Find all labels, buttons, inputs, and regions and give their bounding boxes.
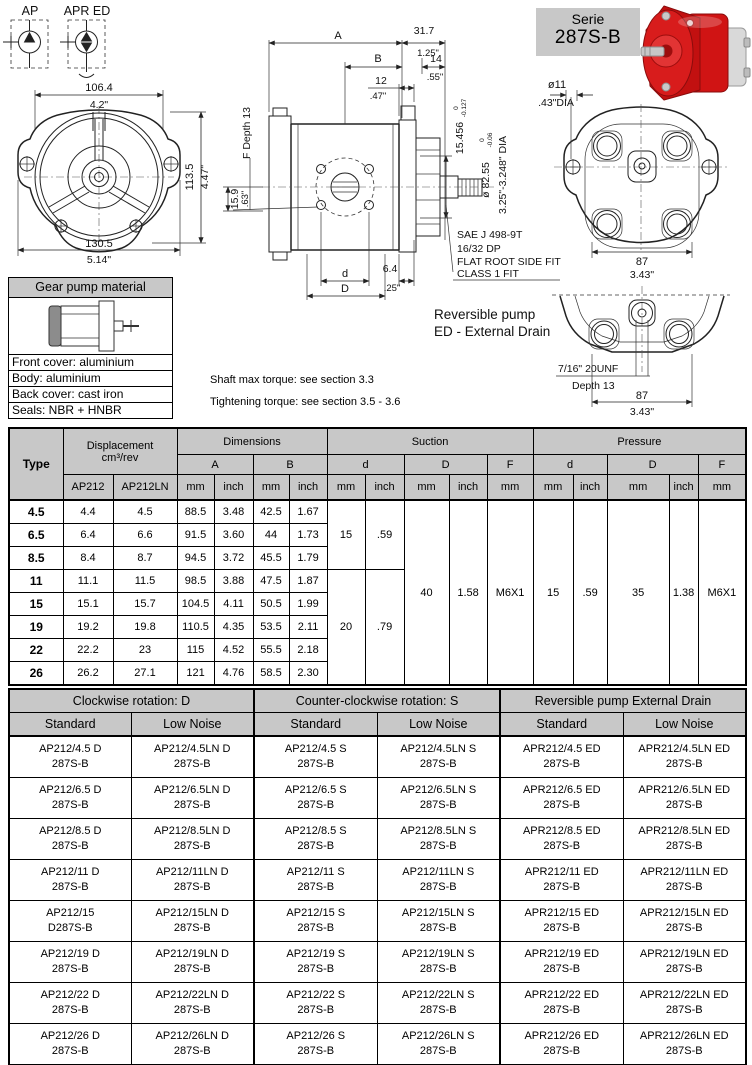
dim-dd-label: D (341, 283, 349, 295)
model-cell-line: AP212/11LN S (378, 865, 500, 880)
model-cell: APR212/26 ED287S-B (500, 1024, 623, 1065)
model-cell: AP212/6.5 D287S-B (9, 778, 131, 819)
model-cell-line: APR212/6.5 ED (501, 783, 623, 798)
front-span-mm: 130.5 (85, 238, 113, 250)
model-cell-line: APR212/19 ED (501, 947, 623, 962)
reversible-note-line2: ED - External Drain (434, 324, 550, 339)
value-cell: 91.5 (177, 524, 214, 547)
model-cell: AP212/22LN S287S-B (377, 983, 500, 1024)
model-cell-line: D287S-B (10, 921, 131, 936)
col-header-suction-dd: D (404, 455, 487, 475)
ap-symbol-label: AP (22, 4, 39, 18)
model-cell: APR212/19LN ED287S-B (623, 942, 746, 983)
model-cell-line: AP212/6.5LN S (378, 783, 500, 798)
model-cell-line: APR212/4.5 ED (501, 742, 623, 757)
thread-label: 7/16" 20UNF (558, 363, 618, 375)
front-width-in: 4.2" (90, 99, 109, 111)
value-cell: 55.5 (253, 639, 289, 662)
unit-header: mm (404, 475, 449, 501)
unit-header: mm (533, 475, 573, 501)
value-cell: 1.87 (289, 570, 327, 593)
model-cell-line: AP212/15LN S (378, 906, 500, 921)
value-cell: 4.5 (113, 500, 177, 524)
value-cell: 6.4 (63, 524, 113, 547)
value-cell: 3.88 (214, 570, 253, 593)
model-cell-line: 287S-B (255, 839, 377, 854)
material-row-seals: Seals: NBR + HNBR (9, 402, 172, 418)
unit-header: inch (214, 475, 253, 501)
model-cell-line: AP212/19 S (255, 947, 377, 962)
model-row: AP212/6.5 D287S-BAP212/6.5LN D287S-BAP21… (9, 778, 746, 819)
value-cell: .59 (365, 500, 404, 570)
unit-header: mm (327, 475, 365, 501)
group-header-reversible: Reversible pump External Drain (500, 689, 746, 713)
model-cell-line: AP212/26LN D (132, 1029, 254, 1044)
ap-symbol: AP (3, 4, 48, 68)
model-cell: AP212/11 D287S-B (9, 860, 131, 901)
material-box-title: Gear pump material (9, 278, 172, 298)
model-cell-line: 287S-B (378, 798, 500, 813)
model-cell-line: APR212/6.5LN ED (624, 783, 746, 798)
value-cell: 15 (533, 500, 573, 685)
dim-12-in: .47" (370, 91, 387, 102)
apr-ed-symbol: APR ED (60, 4, 110, 78)
value-cell: 1.67 (289, 500, 327, 524)
value-cell: 88.5 (177, 500, 214, 524)
front-width-mm: 106.4 (85, 82, 113, 94)
group-header-counter-clockwise: Counter-clockwise rotation: S (254, 689, 500, 713)
dim-a-label: A (334, 30, 342, 42)
model-cell: AP212/22LN D287S-B (131, 983, 254, 1024)
model-row: AP212/22 D287S-BAP212/22LN D287S-BAP212/… (9, 983, 746, 1024)
unit-header: mm (698, 475, 746, 501)
value-cell: 53.5 (253, 616, 289, 639)
model-cell: AP212/19 S287S-B (254, 942, 377, 983)
model-cell: APR212/22LN ED287S-B (623, 983, 746, 1024)
material-row-front-cover: Front cover: aluminium (9, 354, 172, 370)
model-cell-line: 287S-B (132, 1003, 254, 1018)
displacement-label: Displacement (87, 440, 154, 452)
dim-64-in: .25" (384, 283, 401, 294)
model-cell-line: AP212/26 D (10, 1029, 131, 1044)
model-cell-line: APR212/15LN ED (624, 906, 746, 921)
model-cell-line: 287S-B (132, 880, 254, 895)
model-cell-line: 287S-B (255, 962, 377, 977)
model-cell-line: 287S-B (624, 921, 746, 936)
value-cell: 1.38 (669, 500, 698, 685)
model-cell: APR212/6.5LN ED287S-B (623, 778, 746, 819)
shaft-len-dim: 15.456 (454, 122, 466, 154)
model-cell: APR212/15 ED287S-B (500, 901, 623, 942)
model-cell-line: AP212/6.5 S (255, 783, 377, 798)
value-cell: M6X1 (487, 500, 533, 685)
model-cell: AP212/4.5LN D287S-B (131, 736, 254, 778)
value-cell: 11.5 (113, 570, 177, 593)
value-cell: 3.60 (214, 524, 253, 547)
model-cell: AP212/8.5 S287S-B (254, 819, 377, 860)
apr-ed-symbol-label: APR ED (64, 4, 111, 18)
side-view-drawing: A 31.7 1.25" B 14 .55" 12 .47" F Depth 1… (223, 25, 561, 300)
dim-b-label: B (374, 53, 381, 65)
model-cell-line: 287S-B (624, 757, 746, 772)
model-cell-line: 287S-B (10, 839, 131, 854)
value-cell: 8.7 (113, 547, 177, 570)
model-cell-line: 287S-B (10, 962, 131, 977)
model-cell: AP212/22 D287S-B (9, 983, 131, 1024)
model-cell-line: 287S-B (378, 880, 500, 895)
value-cell: 15.7 (113, 593, 177, 616)
model-cell-line: AP212/6.5 D (10, 783, 131, 798)
subheader-standard: Standard (500, 713, 623, 737)
model-cell: APR212/15LN ED287S-B (623, 901, 746, 942)
unit-header: mm (253, 475, 289, 501)
value-cell: 26.2 (63, 662, 113, 686)
model-cell: AP212/15 S287S-B (254, 901, 377, 942)
model-cell-line: 287S-B (255, 757, 377, 772)
model-cell-line: AP212/22LN D (132, 988, 254, 1003)
value-cell: M6X1 (698, 500, 746, 685)
model-cell-line: 287S-B (255, 798, 377, 813)
model-cell-line: 287S-B (624, 839, 746, 854)
thread-depth-label: Depth 13 (572, 380, 615, 392)
model-cell-line: AP212/15LN D (132, 906, 254, 921)
model-cell: AP212/4.5LN S287S-B (377, 736, 500, 778)
shaft-torque-note: Shaft max torque: see section 3.3 (210, 369, 400, 391)
model-cell-line: APR212/4.5LN ED (624, 742, 746, 757)
model-cell-line: APR212/8.5 ED (501, 824, 623, 839)
model-cell-line: 287S-B (501, 839, 623, 854)
rear-width-mm: 87 (636, 256, 648, 268)
model-cell-line: 287S-B (132, 921, 254, 936)
model-cell-line: AP212/22 D (10, 988, 131, 1003)
model-cell-line: AP212/11LN D (132, 865, 254, 880)
model-cell-line: AP212/8.5LN D (132, 824, 254, 839)
model-cell-line: 287S-B (378, 921, 500, 936)
model-cell-line: 287S-B (132, 1044, 254, 1059)
dim-12-mm: 12 (375, 75, 387, 87)
dim-d-label: d (342, 268, 348, 280)
model-cell-line: 287S-B (501, 1003, 623, 1018)
model-cell: AP212/6.5 S287S-B (254, 778, 377, 819)
model-cell: AP212/6.5LN D287S-B (131, 778, 254, 819)
model-cell: AP212/22 S287S-B (254, 983, 377, 1024)
pump-spec-table: Type Displacement cm³/rev Dimensions Suc… (8, 427, 747, 686)
col-header-suction-d: d (327, 455, 404, 475)
col-header-ap212ln: AP212LN (113, 475, 177, 501)
model-cell: AP212/26 S287S-B (254, 1024, 377, 1065)
sae-note-line2: 16/32 DP (457, 243, 501, 255)
model-cell-line: AP212/8.5LN S (378, 824, 500, 839)
model-cell: AP212/11LN D287S-B (131, 860, 254, 901)
front-height-in: 4.47" (199, 165, 211, 189)
model-cell-line: 287S-B (624, 1003, 746, 1018)
type-cell: 15 (9, 593, 63, 616)
front-span-in: 5.14" (87, 254, 111, 266)
col-header-a: A (177, 455, 253, 475)
model-cell-line: APR212/26LN ED (624, 1029, 746, 1044)
model-cell-line: 287S-B (378, 839, 500, 854)
model-cell-line: 287S-B (378, 757, 500, 772)
model-cell-line: 287S-B (501, 1044, 623, 1059)
drain-mark (79, 74, 94, 78)
model-row: AP212/26 D287S-BAP212/26LN D287S-BAP212/… (9, 1024, 746, 1065)
model-cell-line: 287S-B (132, 962, 254, 977)
model-cell: AP212/19LN S287S-B (377, 942, 500, 983)
value-cell: 40 (404, 500, 449, 685)
unit-header: mm (177, 475, 214, 501)
model-cell-line: 287S-B (501, 921, 623, 936)
value-cell: 4.11 (214, 593, 253, 616)
torque-notes: Shaft max torque: see section 3.3 Tighte… (210, 369, 400, 413)
dim-159-in: .63" (240, 191, 251, 208)
model-cell: APR212/6.5 ED287S-B (500, 778, 623, 819)
value-cell: 35 (607, 500, 669, 685)
model-cell-line: AP212/4.5LN D (132, 742, 254, 757)
value-cell: 1.79 (289, 547, 327, 570)
model-cell: APR212/11LN ED287S-B (623, 860, 746, 901)
value-cell: 19.2 (63, 616, 113, 639)
model-cell: AP212/4.5 D287S-B (9, 736, 131, 778)
model-cell: AP212/19LN D287S-B (131, 942, 254, 983)
model-cell-line: 287S-B (624, 1044, 746, 1059)
model-cell-line: AP212/19LN D (132, 947, 254, 962)
value-cell: 8.4 (63, 547, 113, 570)
value-cell: 4.35 (214, 616, 253, 639)
serie-badge-line1: Serie (536, 8, 640, 27)
value-cell: 2.11 (289, 616, 327, 639)
model-cell: APR212/22 ED287S-B (500, 983, 623, 1024)
model-cell-line: 287S-B (624, 880, 746, 895)
type-cell: 6.5 (9, 524, 63, 547)
model-cell-line: 287S-B (10, 798, 131, 813)
value-cell: 45.5 (253, 547, 289, 570)
type-cell: 19 (9, 616, 63, 639)
model-cell-line: 287S-B (624, 962, 746, 977)
model-cell-line: AP212/4.5 S (255, 742, 377, 757)
rear-width-in: 3.43" (630, 269, 654, 281)
pump-side-icon (9, 298, 169, 354)
material-box-drawing (9, 298, 172, 354)
model-row: AP212/19 D287S-BAP212/19LN D287S-BAP212/… (9, 942, 746, 983)
model-cell-line: AP212/22LN S (378, 988, 500, 1003)
value-cell: 98.5 (177, 570, 214, 593)
model-cell-line: AP212/26LN S (378, 1029, 500, 1044)
displacement-unit: cm³/rev (102, 452, 139, 464)
tightening-torque-note: Tightening torque: see section 3.5 - 3.6 (210, 391, 400, 413)
model-table-body: AP212/4.5 D287S-BAP212/4.5LN D287S-BAP21… (9, 736, 746, 1065)
model-cell-line: APR212/19LN ED (624, 947, 746, 962)
value-cell: 6.6 (113, 524, 177, 547)
model-cell-line: AP212/22 S (255, 988, 377, 1003)
model-cell-line: 287S-B (624, 798, 746, 813)
value-cell: 27.1 (113, 662, 177, 686)
dia11-in: .43"DIA (538, 97, 574, 109)
model-cell-line: APR212/22 ED (501, 988, 623, 1003)
value-cell: 4.4 (63, 500, 113, 524)
model-cell-line: AP212/11 D (10, 865, 131, 880)
model-cell: AP212/8.5LN D287S-B (131, 819, 254, 860)
serie-badge: Serie 287S-B (536, 8, 640, 56)
model-cell-line: AP212/8.5 S (255, 824, 377, 839)
model-cell: AP212/26LN S287S-B (377, 1024, 500, 1065)
col-header-suction-f: F (487, 455, 533, 475)
model-cell-line: 287S-B (255, 1044, 377, 1059)
spec-row: 4.54.44.588.53.4842.51.6715.59401.58M6X1… (9, 500, 746, 524)
type-cell: 26 (9, 662, 63, 686)
model-cell-line: 287S-B (10, 1044, 131, 1059)
value-cell: 104.5 (177, 593, 214, 616)
value-cell: 11.1 (63, 570, 113, 593)
model-cell-line: 287S-B (378, 1003, 500, 1018)
shaft-dia-tol-hi: 0 (479, 138, 486, 142)
model-cell-line: APR212/15 ED (501, 906, 623, 921)
datasheet-page: AP APR ED (0, 0, 752, 1065)
model-cell-line: 287S-B (255, 921, 377, 936)
value-cell: 1.73 (289, 524, 327, 547)
model-row: AP212/15D287S-BAP212/15LN D287S-BAP212/1… (9, 901, 746, 942)
col-header-pressure: Pressure (533, 428, 746, 455)
shaft-len-tol-hi: 0 (453, 106, 460, 110)
material-row-body: Body: aluminium (9, 370, 172, 386)
model-cell-line: AP212/4.5LN S (378, 742, 500, 757)
model-cell-line: AP212/6.5LN D (132, 783, 254, 798)
model-cell: AP212/19 D287S-B (9, 942, 131, 983)
model-row: AP212/11 D287S-BAP212/11LN D287S-BAP212/… (9, 860, 746, 901)
value-cell: .79 (365, 570, 404, 686)
reversible-note-line1: Reversible pump (434, 307, 535, 322)
reversible-rear-view-drawing: 7/16" 20UNF Depth 13 87 3.43" (552, 286, 730, 418)
value-cell: 3.72 (214, 547, 253, 570)
value-cell: 20 (327, 570, 365, 686)
value-cell: 23 (113, 639, 177, 662)
value-cell: 15 (327, 500, 365, 570)
model-cell: APR212/19 ED287S-B (500, 942, 623, 983)
model-cell-line: 287S-B (10, 1003, 131, 1018)
col-header-dimensions: Dimensions (177, 428, 327, 455)
value-cell: 3.48 (214, 500, 253, 524)
value-cell: 4.76 (214, 662, 253, 686)
value-cell: 58.5 (253, 662, 289, 686)
dim-14-mm: 14 (430, 53, 442, 65)
dim-14-in: .55" (427, 72, 444, 83)
unit-header: inch (289, 475, 327, 501)
value-cell: 1.99 (289, 593, 327, 616)
dim-317-mm: 31.7 (414, 25, 435, 37)
sae-note-line3: FLAT ROOT SIDE FIT (457, 256, 561, 268)
model-code-table: Clockwise rotation: D Counter-clockwise … (8, 688, 747, 1065)
model-cell-line: 287S-B (378, 1044, 500, 1059)
type-cell: 8.5 (9, 547, 63, 570)
model-cell: AP212/6.5LN S287S-B (377, 778, 500, 819)
model-cell-line: AP212/4.5 D (10, 742, 131, 757)
shaft-dia-dim: ø 82.55 (480, 162, 492, 198)
subheader-low-noise: Low Noise (377, 713, 500, 737)
model-cell: AP212/26LN D287S-B (131, 1024, 254, 1065)
model-cell: APR212/4.5LN ED287S-B (623, 736, 746, 778)
value-cell: 2.30 (289, 662, 327, 686)
col-header-ap212: AP212 (63, 475, 113, 501)
model-cell-line: APR212/11 ED (501, 865, 623, 880)
shaft-dia-tol-lo: -0.06 (487, 132, 494, 147)
shaft-dia-in: 3.25"-3.248" DIA (497, 136, 509, 214)
unit-header: inch (573, 475, 607, 501)
rear-view-drawing: ø11 .43"DIA 87 3.43" (538, 79, 728, 281)
dia11-mm: ø11 (548, 79, 566, 91)
col-header-pressure-dd: D (607, 455, 698, 475)
model-cell-line: 287S-B (132, 798, 254, 813)
model-cell: APR212/11 ED287S-B (500, 860, 623, 901)
dim-64-mm: 6.4 (383, 263, 398, 275)
value-cell: .59 (573, 500, 607, 685)
model-cell-line: AP212/15 (10, 906, 131, 921)
model-cell-line: 287S-B (255, 1003, 377, 1018)
value-cell: 110.5 (177, 616, 214, 639)
f-depth-label: F Depth 13 (241, 107, 253, 159)
model-cell: APR212/8.5LN ED287S-B (623, 819, 746, 860)
value-cell: 19.8 (113, 616, 177, 639)
value-cell: 22.2 (63, 639, 113, 662)
model-row: AP212/4.5 D287S-BAP212/4.5LN D287S-BAP21… (9, 736, 746, 778)
unit-header: inch (449, 475, 487, 501)
model-cell-line: 287S-B (501, 757, 623, 772)
model-cell: AP212/15D287S-B (9, 901, 131, 942)
model-cell-line: 287S-B (10, 880, 131, 895)
value-cell: 121 (177, 662, 214, 686)
spec-table-body: 4.54.44.588.53.4842.51.6715.59401.58M6X1… (9, 500, 746, 685)
rear2-width-mm: 87 (636, 390, 648, 402)
model-cell: APR212/26LN ED287S-B (623, 1024, 746, 1065)
unit-header: inch (669, 475, 698, 501)
model-cell-line: APR212/26 ED (501, 1029, 623, 1044)
model-cell-line: APR212/22LN ED (624, 988, 746, 1003)
subheader-low-noise: Low Noise (131, 713, 254, 737)
model-cell-line: 287S-B (255, 880, 377, 895)
model-cell-line: 287S-B (501, 962, 623, 977)
group-header-clockwise: Clockwise rotation: D (9, 689, 254, 713)
front-view-drawing: 106.4 4.2" 113.5 4.47" 130.5 5.14" (18, 82, 211, 266)
value-cell: 42.5 (253, 500, 289, 524)
value-cell: 50.5 (253, 593, 289, 616)
material-box: Gear pump material Front cover: aluminiu… (8, 277, 173, 419)
value-cell: 94.5 (177, 547, 214, 570)
model-cell: AP212/8.5 D287S-B (9, 819, 131, 860)
model-cell: AP212/11 S287S-B (254, 860, 377, 901)
type-cell: 22 (9, 639, 63, 662)
value-cell: 4.52 (214, 639, 253, 662)
model-cell-line: 287S-B (132, 839, 254, 854)
value-cell: 15.1 (63, 593, 113, 616)
value-cell: 44 (253, 524, 289, 547)
col-header-pressure-f: F (698, 455, 746, 475)
model-cell-line: 287S-B (378, 962, 500, 977)
pump-photo (641, 6, 750, 100)
type-cell: 11 (9, 570, 63, 593)
col-header-type: Type (9, 428, 63, 500)
col-header-pressure-d: d (533, 455, 607, 475)
model-cell-line: 287S-B (10, 757, 131, 772)
value-cell: 47.5 (253, 570, 289, 593)
model-cell-line: AP212/19LN S (378, 947, 500, 962)
value-cell: 115 (177, 639, 214, 662)
subheader-standard: Standard (254, 713, 377, 737)
col-header-b: B (253, 455, 327, 475)
sae-note-line1: SAE J 498-9T (457, 229, 523, 241)
model-cell: AP212/26 D287S-B (9, 1024, 131, 1065)
model-cell-line: AP212/19 D (10, 947, 131, 962)
shaft-len-tol-lo: -0.127 (461, 98, 468, 117)
material-row-back-cover: Back cover: cast iron (9, 386, 172, 402)
model-cell-line: AP212/26 S (255, 1029, 377, 1044)
